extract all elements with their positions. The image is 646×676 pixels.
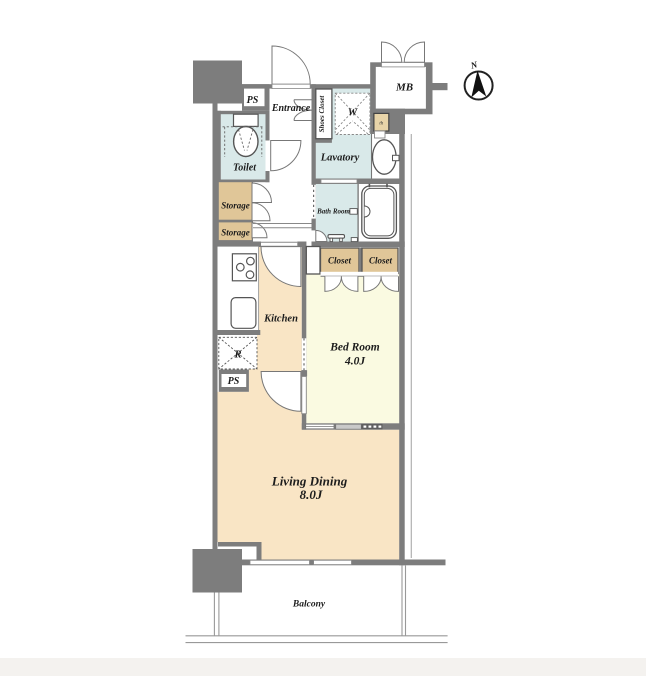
- svg-text:Balcony: Balcony: [292, 599, 326, 609]
- svg-text:MB: MB: [395, 82, 413, 94]
- svg-text:8.0J: 8.0J: [300, 487, 323, 502]
- svg-text:4.0J: 4.0J: [344, 355, 366, 367]
- svg-text:Closet: Closet: [369, 256, 393, 266]
- svg-text:Toilet: Toilet: [233, 163, 257, 174]
- svg-text:PS: PS: [247, 95, 259, 106]
- svg-text:Shoes Closet: Shoes Closet: [318, 95, 326, 133]
- svg-text:Closet: Closet: [328, 256, 352, 266]
- svg-text:Bath Room: Bath Room: [316, 208, 350, 216]
- svg-text:Storage: Storage: [221, 200, 250, 210]
- svg-text:Lavatory: Lavatory: [320, 153, 360, 164]
- svg-text:Bed Room: Bed Room: [329, 341, 380, 353]
- svg-text:Kitchen: Kitchen: [263, 314, 298, 325]
- svg-text:W: W: [348, 108, 358, 119]
- svg-text:R: R: [233, 349, 241, 360]
- svg-text:PS: PS: [228, 376, 240, 387]
- svg-text:Entrance: Entrance: [271, 103, 311, 114]
- svg-text:Storage: Storage: [221, 227, 250, 237]
- svg-text:th: th: [379, 122, 383, 127]
